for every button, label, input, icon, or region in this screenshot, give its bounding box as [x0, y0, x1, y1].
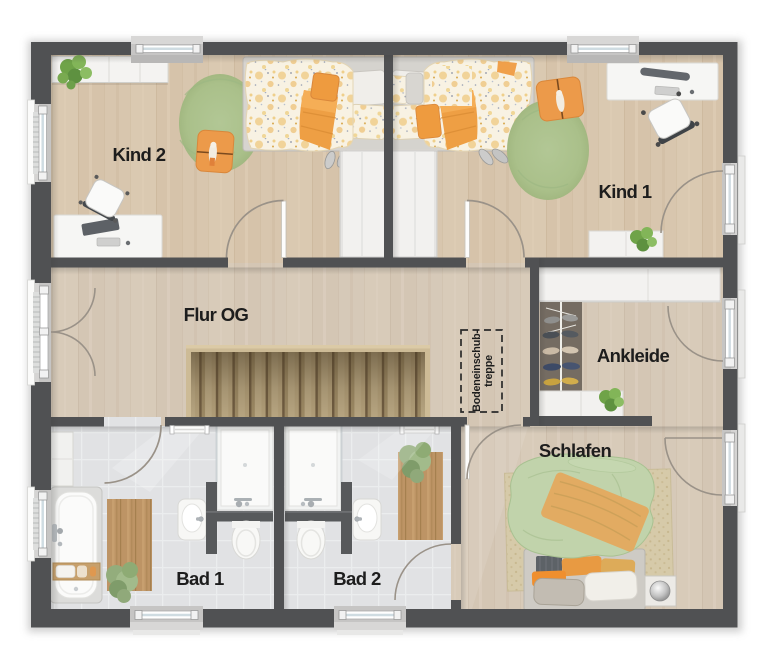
svg-text:Ankleide: Ankleide — [597, 345, 670, 366]
svg-text:Kind 2: Kind 2 — [113, 144, 166, 165]
svg-text:Schlafen: Schlafen — [539, 440, 612, 461]
svg-text:Bad 2: Bad 2 — [333, 568, 381, 589]
svg-text:Kind 1: Kind 1 — [599, 181, 652, 202]
svg-text:Flur OG: Flur OG — [184, 304, 249, 325]
svg-text:Bad 1: Bad 1 — [176, 568, 224, 589]
